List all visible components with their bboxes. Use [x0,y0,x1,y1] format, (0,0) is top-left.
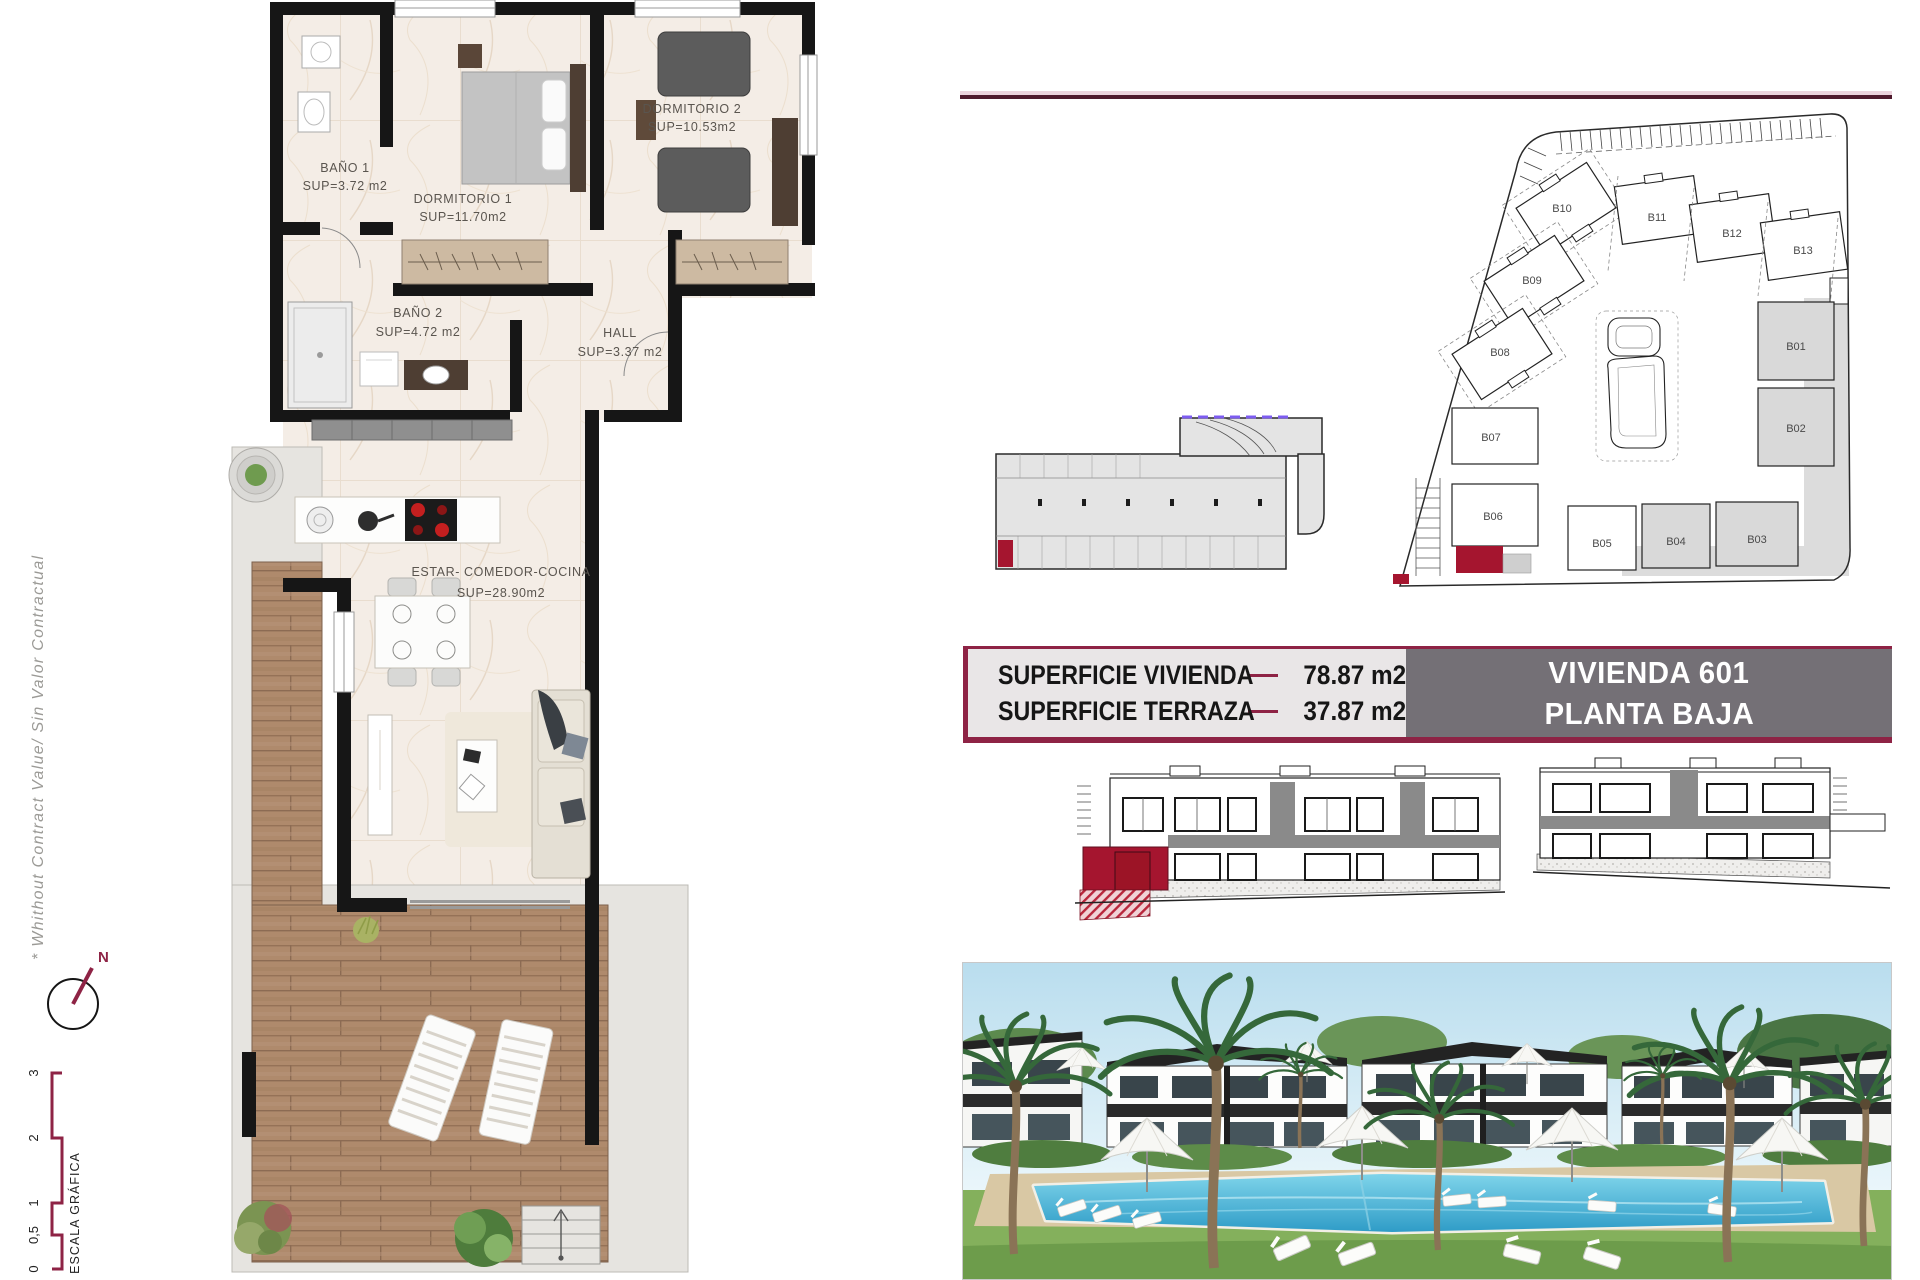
graphic-scale: 3 2 1 0,5 0 ESCALA GRÁFICA [22,1038,102,1280]
scale-title: ESCALA GRÁFICA [67,1152,82,1274]
scale-tick: 0,5 [26,1226,41,1244]
block-label: B11 [1648,212,1667,224]
block-label: B02 [1786,423,1806,435]
unit-badge: VIVIENDA 601 PLANTA BAJA [1406,649,1892,737]
table-row: SUPERFICIE VIVIENDA 78.87 m2 [968,657,1406,693]
block-label: B01 [1786,341,1806,353]
room-name: DORMITORIO 1 [414,192,513,206]
scale-tick: 2 [26,1134,41,1141]
foreground-lawn [962,1240,1892,1280]
scale-tick: 0 [26,1265,41,1272]
scale-bar [52,1073,62,1269]
surface-value: 78.87 m2 [1303,660,1406,691]
scale-tick: 1 [26,1199,41,1206]
room-name: HALL [603,326,637,340]
header-rule [960,91,1892,99]
garage-storage-highlight [998,540,1013,567]
block-label: B04 [1666,536,1686,548]
room-area: SUP=3.37 m2 [578,345,663,359]
highlighted-unit [1456,546,1503,573]
table-row: SUPERFICIE TERRAZA 37.87 m2 [968,693,1406,729]
terrace-stairs [522,1206,600,1264]
elevation-side [1533,758,1890,888]
area-summary-table: SUPERFICIE VIVIENDA 78.87 m2 SUPERFICIE … [963,646,1892,743]
disclaimer-note: * Whithout Contract Value/ Sin Valor Con… [30,545,48,960]
room-name: BAÑO 1 [320,161,369,175]
room-name: DORMITORIO 2 [643,102,742,116]
round-planter [229,448,283,502]
block-label: B08 [1490,347,1510,359]
block-label: B10 [1552,203,1572,215]
room-area: SUP=28.90m2 [457,586,545,600]
block-label: B06 [1483,511,1503,523]
elevation-drawings [1075,750,1895,950]
surface-label: SUPERFICIE TERRAZA [998,696,1213,727]
garage-plan [996,417,1324,569]
scale-tick: 3 [26,1069,41,1076]
compass-north-label: N [98,949,109,966]
floorplan-drawing: BAÑO 1 SUP=3.72 m2 DORMITORIO 1 SUP=11.7… [220,0,820,1280]
room-area: SUP=11.70m2 [419,210,506,224]
block-label: B12 [1722,228,1742,240]
surface-value: 37.87 m2 [1303,696,1406,727]
surface-label: SUPERFICIE VIVIENDA [998,660,1213,691]
room-area: SUP=3.72 m2 [303,179,388,193]
elevation-front [1075,766,1505,920]
unit-name: VIVIENDA 601 [1548,655,1749,691]
room-area: SUP=10.53m2 [648,120,736,134]
site-pool [1596,311,1678,461]
block-label: B13 [1793,245,1813,257]
block-label: B07 [1481,432,1501,444]
brochure-page: * Whithout Contract Value/ Sin Valor Con… [0,0,1920,1280]
surface-table: SUPERFICIE VIVIENDA 78.87 m2 SUPERFICIE … [963,649,1406,737]
block-label: B05 [1592,538,1612,550]
block-label: B09 [1522,275,1542,287]
room-name: ESTAR- COMEDOR-COCINA [411,565,590,579]
render-photo [962,962,1892,1280]
room-area: SUP=4.72 m2 [376,325,461,339]
unit-floor: PLANTA BAJA [1544,696,1754,732]
room-name: BAÑO 2 [393,306,442,320]
compass-icon: N [26,946,126,1036]
siteplan-drawing: B01 B02 B03 B04 B05 B06 B07 B08 B09 B10 … [958,106,1898,641]
block-label: B03 [1747,534,1767,546]
